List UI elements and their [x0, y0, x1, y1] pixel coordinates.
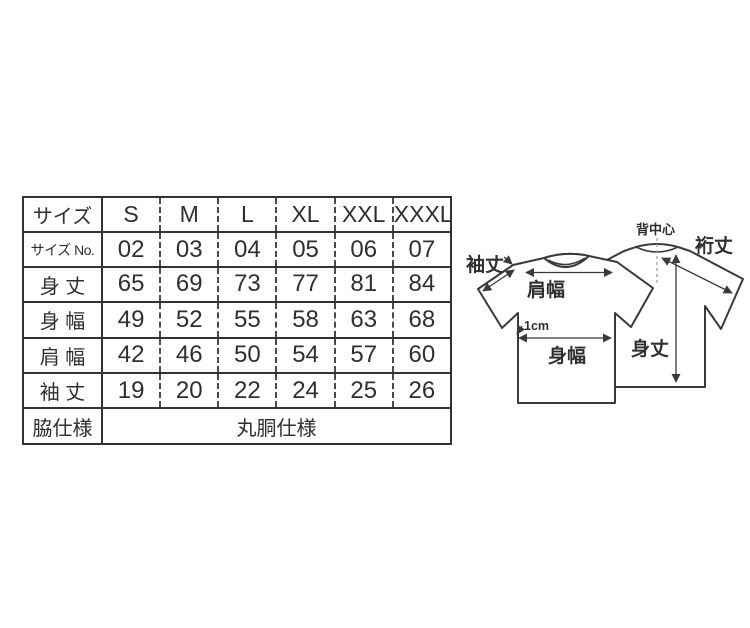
table-row-body-width: 身 幅 49 52 55 58 63 68	[23, 302, 451, 337]
back-center-label: 背中心	[636, 222, 675, 237]
row-label-body-length: 身 丈	[23, 267, 102, 302]
table-cell: 58	[276, 302, 334, 337]
table-cell: 46	[160, 338, 218, 373]
table-cell: 84	[393, 267, 451, 302]
row-label-size-no: サイズ No.	[23, 232, 102, 266]
table-row-side-spec: 脇仕様 丸胴仕様	[23, 408, 451, 444]
table-row-size-no: サイズ No. 02 03 04 05 06 07	[23, 232, 451, 266]
sleeve-length-label: 袖丈	[466, 253, 504, 276]
column-header-xxxl: XXXL	[393, 197, 451, 232]
column-header-l: L	[218, 197, 276, 232]
table-cell: 06	[335, 232, 393, 266]
table-cell: 42	[102, 338, 160, 373]
table-cell: 52	[160, 302, 218, 337]
table-cell: 63	[335, 302, 393, 337]
tshirt-diagram-svg: 袖丈 肩幅 1cm 身幅 背中心 裄丈 身丈	[458, 205, 748, 435]
body-width-label: 身幅	[548, 344, 586, 367]
table-cell: 60	[393, 338, 451, 373]
row-label-shoulder-width: 肩 幅	[23, 338, 102, 373]
yuki-length-label: 裄丈	[694, 234, 733, 257]
table-cell: 49	[102, 302, 160, 337]
table-cell: 20	[160, 373, 218, 408]
table-header-row: サイズ S M L XL XXL XXXL	[23, 197, 451, 232]
table-cell: 55	[218, 302, 276, 337]
table-cell: 03	[160, 232, 218, 266]
table-row-shoulder-width: 肩 幅 42 46 50 54 57 60	[23, 338, 451, 373]
table-cell: 02	[102, 232, 160, 266]
table-cell: 69	[160, 267, 218, 302]
row-label-side-spec: 脇仕様	[23, 408, 102, 444]
table-cell: 65	[102, 267, 160, 302]
table-cell: 07	[393, 232, 451, 266]
table-cell: 54	[276, 338, 334, 373]
column-header-xxl: XXL	[335, 197, 393, 232]
table-cell: 05	[276, 232, 334, 266]
table-cell: 57	[335, 338, 393, 373]
row-label-body-width: 身 幅	[23, 302, 102, 337]
sleeve-length-pointer	[504, 257, 512, 264]
table-cell: 04	[218, 232, 276, 266]
table-cell: 77	[276, 267, 334, 302]
column-header-s: S	[102, 197, 160, 232]
table-cell: 26	[393, 373, 451, 408]
table-cell: 73	[218, 267, 276, 302]
table-row-body-length: 身 丈 65 69 73 77 81 84	[23, 267, 451, 302]
row-label-sleeve-length: 袖 丈	[23, 373, 102, 408]
table-cell: 81	[335, 267, 393, 302]
shoulder-width-label: 肩幅	[527, 278, 565, 301]
column-header-xl: XL	[276, 197, 334, 232]
table-cell: 22	[218, 373, 276, 408]
column-header-m: M	[160, 197, 218, 232]
size-chart-canvas: サイズ S M L XL XXL XXXL サイズ No. 02 03 04 0…	[0, 0, 750, 628]
table-cell: 19	[102, 373, 160, 408]
table-cell: 25	[335, 373, 393, 408]
body-length-label: 身丈	[631, 337, 669, 360]
table-cell: 50	[218, 338, 276, 373]
table-row-sleeve-length: 袖 丈 19 20 22 24 25 26	[23, 373, 451, 408]
underarm-offset-label: 1cm	[524, 319, 549, 333]
table-cell: 24	[276, 373, 334, 408]
side-spec-value: 丸胴仕様	[102, 408, 451, 444]
size-table-container: サイズ S M L XL XXL XXXL サイズ No. 02 03 04 0…	[22, 196, 452, 445]
size-header-label: サイズ	[23, 197, 102, 232]
table-cell: 68	[393, 302, 451, 337]
size-table: サイズ S M L XL XXL XXXL サイズ No. 02 03 04 0…	[22, 196, 452, 445]
tshirt-diagram: 袖丈 肩幅 1cm 身幅 背中心 裄丈 身丈	[458, 205, 748, 435]
